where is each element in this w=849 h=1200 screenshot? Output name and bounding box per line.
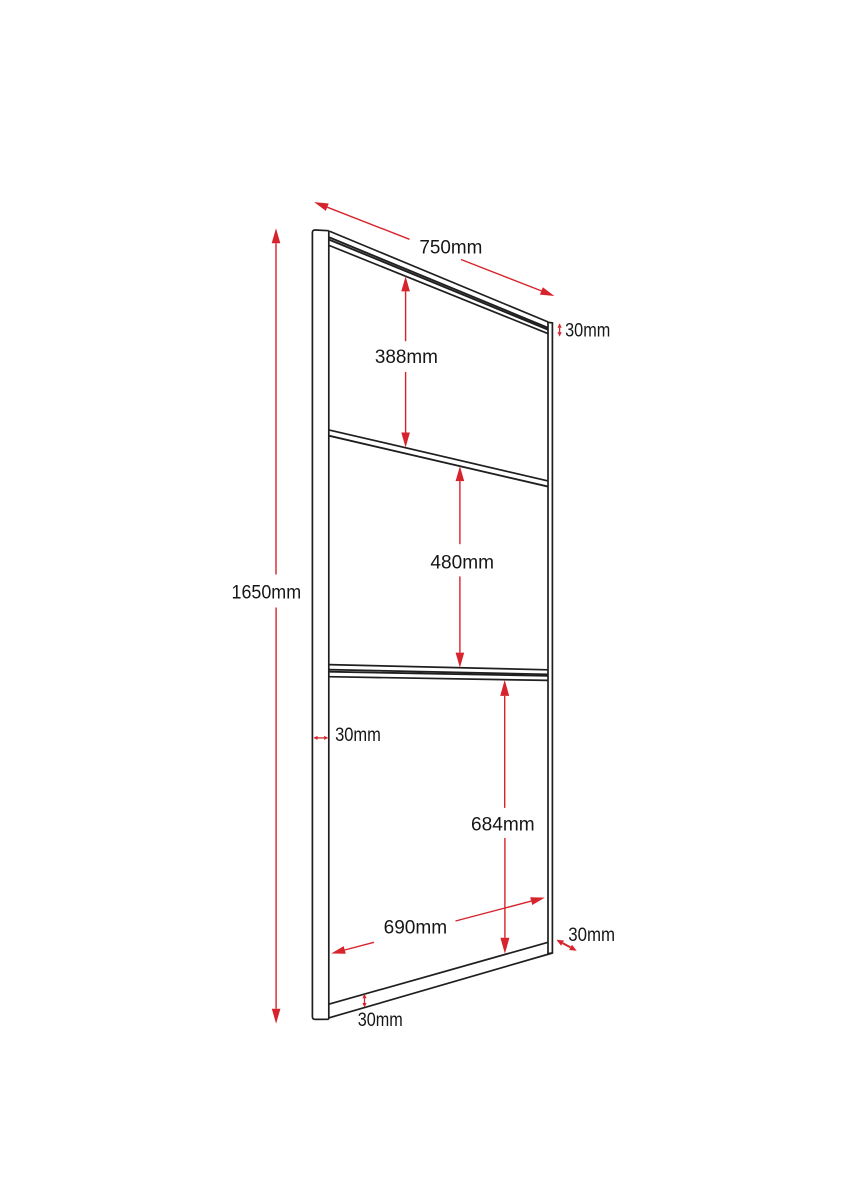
- svg-text:480mm: 480mm: [430, 552, 494, 573]
- svg-text:690mm: 690mm: [384, 918, 448, 939]
- svg-text:30mm: 30mm: [568, 925, 615, 946]
- svg-text:30mm: 30mm: [335, 725, 381, 746]
- svg-text:30mm: 30mm: [358, 1010, 403, 1031]
- svg-text:30mm: 30mm: [565, 320, 610, 341]
- svg-text:750mm: 750mm: [419, 238, 482, 259]
- svg-text:684mm: 684mm: [471, 814, 535, 835]
- svg-text:1650mm: 1650mm: [232, 583, 302, 604]
- svg-text:388mm: 388mm: [375, 347, 438, 368]
